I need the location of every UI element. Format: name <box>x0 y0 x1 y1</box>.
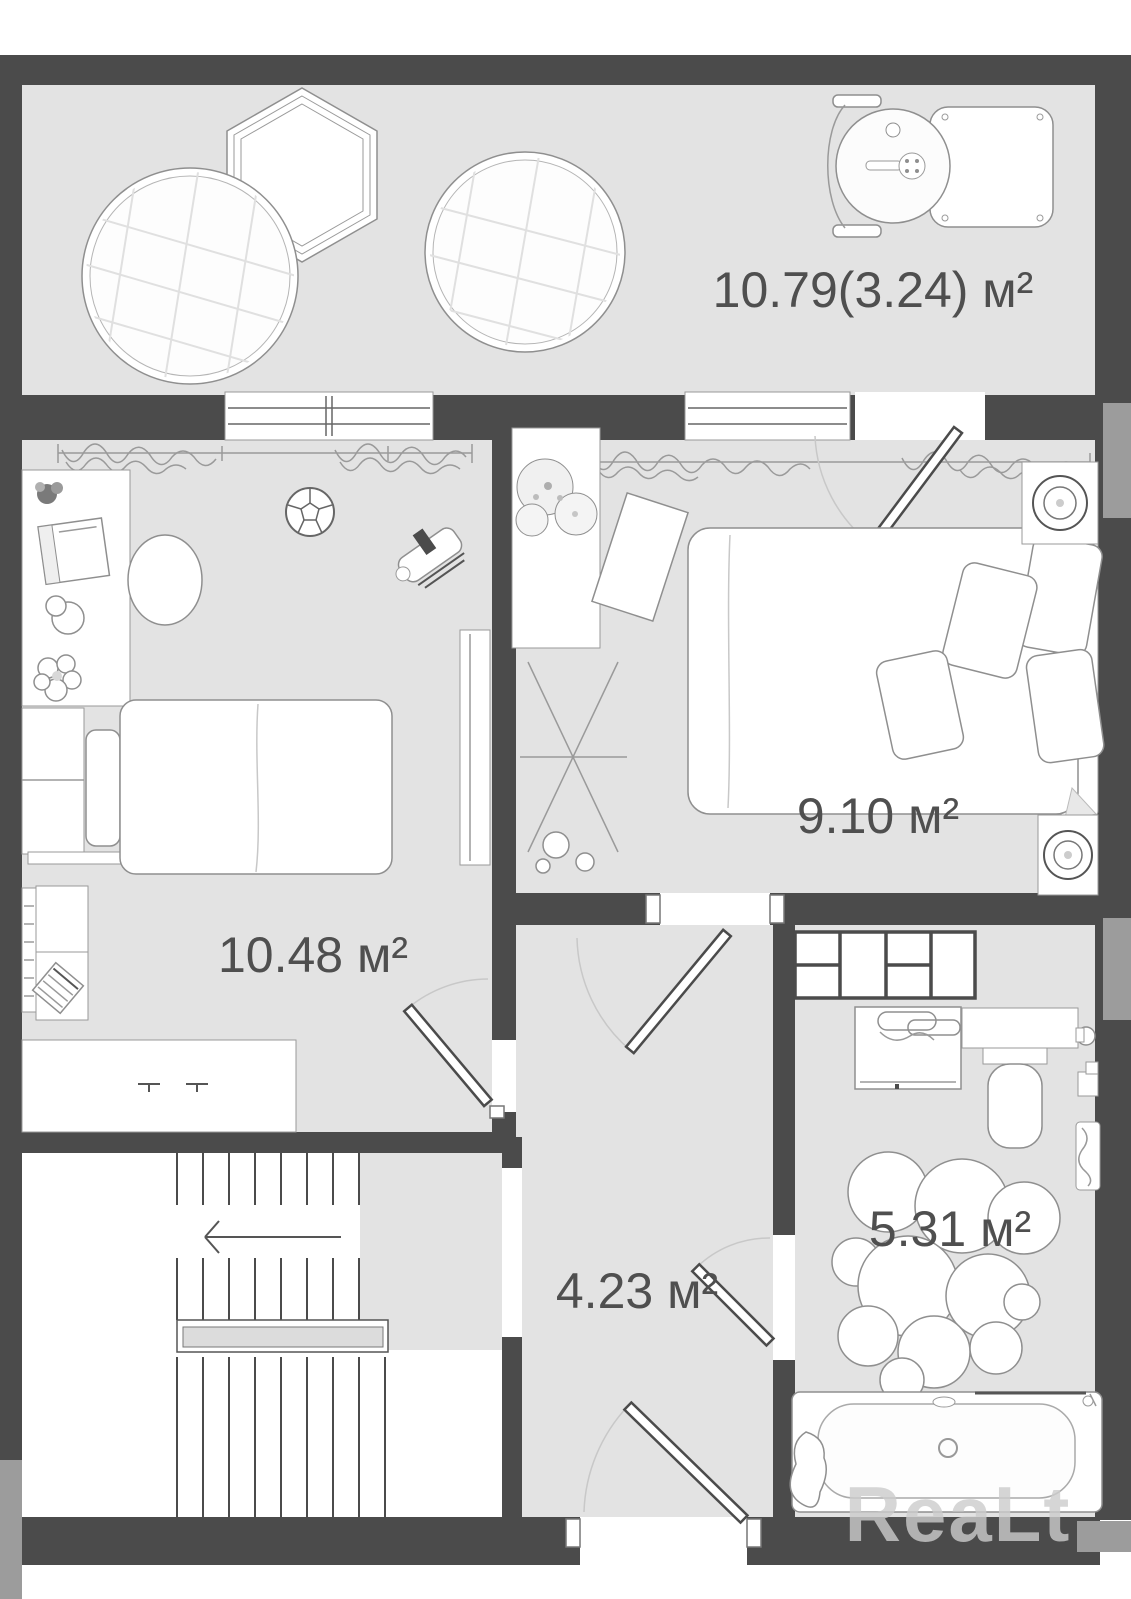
neighbor-block-right-top <box>1103 403 1131 518</box>
wall-bedroom-right-bottom <box>516 893 1100 925</box>
stair-direction-arrow <box>205 1221 341 1253</box>
pillow <box>86 730 120 846</box>
room-label-balcony: 10.79(3.24) м² <box>713 262 1034 318</box>
door-post <box>566 1519 580 1547</box>
room-label-bedroom-left: 10.48 м² <box>218 927 408 983</box>
speaker-top <box>1022 462 1098 544</box>
neighbor-block-right-mid <box>1103 918 1131 1020</box>
wall-bedroom-left-bottom <box>0 1132 503 1153</box>
room-label-hallway: 4.23 м² <box>556 1263 718 1319</box>
single-bed <box>22 700 392 874</box>
soccer-ball <box>286 488 334 536</box>
neighbor-block-bottom-right <box>1077 1521 1131 1552</box>
wardrobe-narrow <box>460 630 490 865</box>
doorway-entry <box>580 1517 747 1565</box>
laptop <box>38 518 109 584</box>
door-post <box>747 1519 761 1547</box>
staircase <box>177 1153 388 1517</box>
radiator <box>22 888 36 1012</box>
neighbor-block-bottom-left <box>0 1460 22 1599</box>
room-label-bedroom-right: 9.10 м² <box>797 788 959 844</box>
door-post <box>490 1106 504 1118</box>
double-bed <box>688 502 1105 822</box>
low-cabinet <box>22 1040 296 1132</box>
pillow <box>1025 648 1105 764</box>
wall-top <box>0 55 1131 85</box>
countertop-sink <box>962 1008 1095 1048</box>
stair-passage-opening <box>502 1168 522 1337</box>
washing-machine <box>855 1007 961 1089</box>
toilet <box>983 1048 1047 1148</box>
floorplan: 10.79(3.24) м² 10.48 м² 9.10 м² 4.23 м² … <box>0 0 1131 1599</box>
window-bedroom-left <box>225 392 433 440</box>
bathroom-cabinets <box>795 932 975 998</box>
doorway-bedroom-left <box>492 1040 516 1112</box>
wall-left <box>0 55 22 1520</box>
blanket <box>120 700 392 874</box>
wall-right <box>1095 85 1131 1520</box>
room-label-bathroom: 5.31 м² <box>869 1201 1031 1257</box>
speaker-bottom <box>1038 815 1098 895</box>
towel-warmer <box>1076 1122 1100 1190</box>
desk-chair <box>128 535 202 625</box>
balcony-door-opening <box>855 392 985 440</box>
door-post <box>646 895 660 923</box>
doorway-bathroom <box>773 1235 795 1360</box>
stair-landing-bar <box>177 1320 388 1352</box>
shelf-unit <box>33 886 88 1020</box>
watermark: ReaLt <box>845 1470 1072 1558</box>
doorway-bedroom-right <box>660 893 770 925</box>
window-bedroom-right <box>685 392 850 440</box>
door-post <box>770 895 784 923</box>
floorplan-page: 10.79(3.24) м² 10.48 м² 9.10 м² 4.23 м² … <box>0 0 1131 1599</box>
